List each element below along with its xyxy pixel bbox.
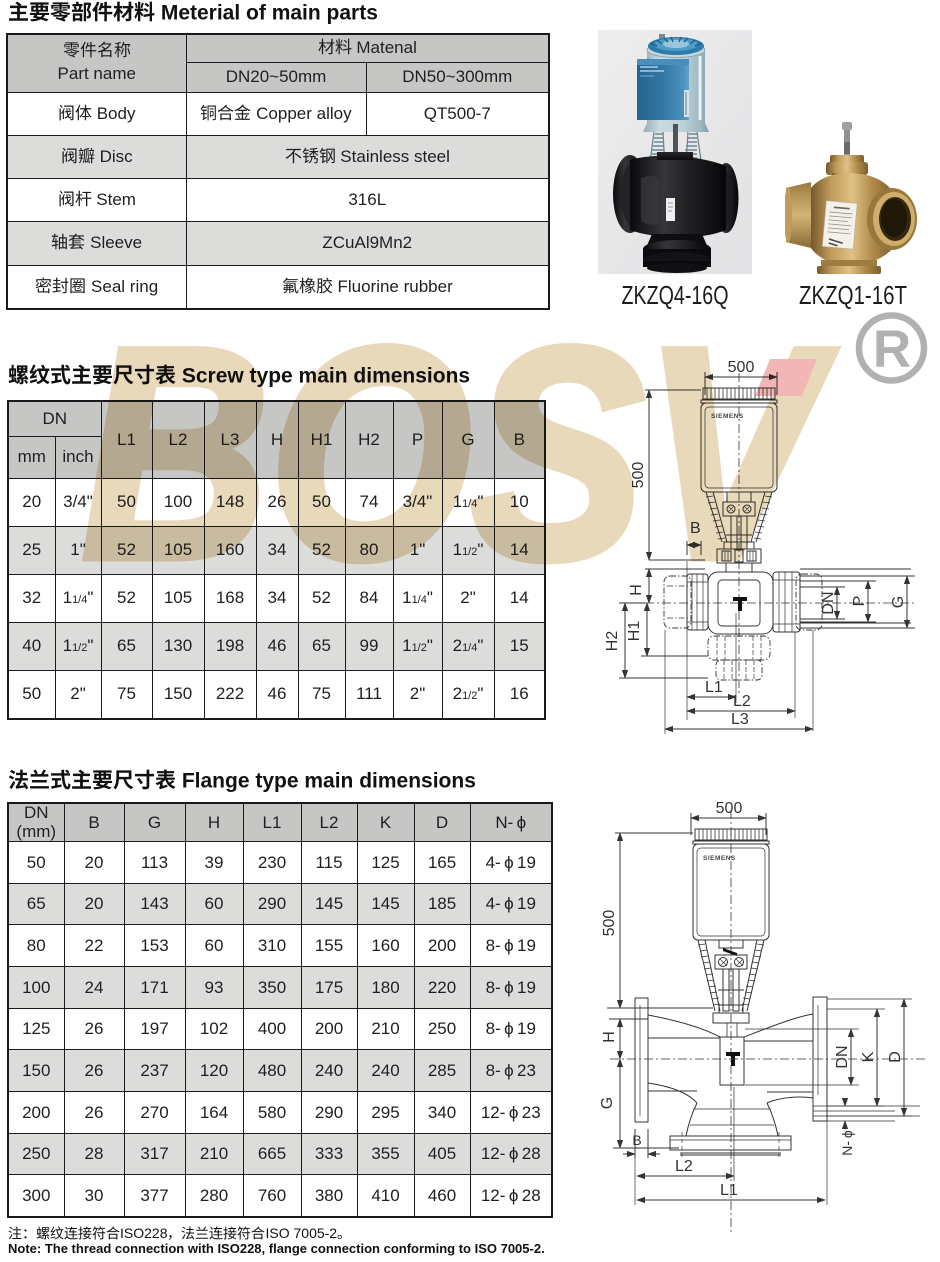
svg-text:L3: L3: [731, 711, 749, 728]
svg-text:500: 500: [716, 800, 743, 817]
svg-text:H: H: [628, 584, 645, 596]
svg-text:ZKZQ1-16T: ZKZQ1-16T: [799, 282, 907, 310]
svg-text:L1: L1: [720, 1182, 738, 1199]
svg-text:K: K: [860, 1051, 877, 1062]
svg-text:L2: L2: [675, 1158, 693, 1175]
svg-text:G: G: [890, 596, 907, 608]
svg-text:DN: DN: [834, 1045, 851, 1068]
svg-text:D: D: [887, 1051, 904, 1063]
svg-text:N- ϕ: N- ϕ: [839, 1130, 855, 1156]
svg-text:SIEMENS: SIEMENS: [703, 855, 736, 862]
svg-text:500: 500: [601, 910, 618, 937]
svg-text:L1: L1: [705, 679, 723, 696]
svg-text:BOSV: BOSV: [82, 325, 839, 570]
svg-text:G: G: [599, 1097, 616, 1109]
svg-text:H: H: [601, 1031, 618, 1043]
svg-text:P: P: [851, 596, 868, 607]
svg-text:H2: H2: [605, 631, 621, 652]
svg-text:H1: H1: [626, 621, 643, 642]
svg-text:DN: DN: [820, 591, 837, 614]
svg-text:B: B: [632, 1132, 641, 1148]
svg-text:L2: L2: [733, 693, 751, 710]
svg-text:ZKZQ4-16Q: ZKZQ4-16Q: [622, 282, 729, 310]
